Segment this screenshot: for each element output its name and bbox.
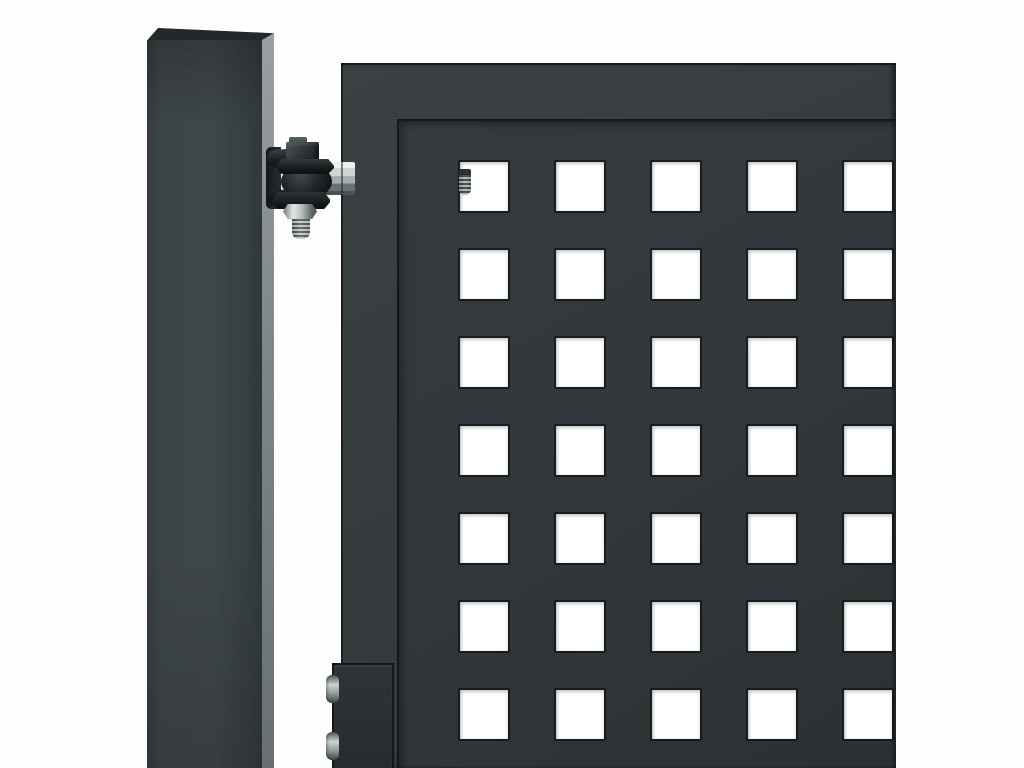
hinge-washer-top: [276, 159, 334, 174]
panel-hole: [556, 514, 604, 563]
panel-hole: [748, 250, 796, 299]
lower-hinge-bolt: [326, 675, 339, 703]
panel-hole: [556, 690, 604, 739]
panel-hole: [748, 426, 796, 475]
lower-hinge-plate: [332, 663, 394, 768]
panel-hole: [460, 426, 508, 475]
panel-hole: [844, 338, 892, 387]
panel-hole: [556, 250, 604, 299]
panel-hole: [460, 690, 508, 739]
hinge-threaded-stud: [292, 217, 310, 239]
perforation-holes-layer: [0, 0, 1024, 768]
panel-hole: [460, 602, 508, 651]
panel-hole: [748, 690, 796, 739]
panel-hole: [652, 602, 700, 651]
panel-hole: [844, 426, 892, 475]
panel-hole: [652, 426, 700, 475]
panel-hole: [844, 250, 892, 299]
panel-hole: [652, 514, 700, 563]
panel-hole: [652, 338, 700, 387]
lower-hinge-bolt: [326, 732, 339, 760]
hinge-hex-nut: [283, 204, 317, 219]
panel-hole: [652, 250, 700, 299]
gate-product-render: [0, 0, 1024, 768]
panel-hole: [460, 250, 508, 299]
panel-hole: [556, 162, 604, 211]
panel-hole: [844, 514, 892, 563]
panel-hole: [748, 162, 796, 211]
panel-hole: [556, 602, 604, 651]
panel-hole: [556, 426, 604, 475]
panel-hole: [556, 338, 604, 387]
panel-hole: [748, 602, 796, 651]
panel-hole: [844, 602, 892, 651]
ball-hinge-assembly: [260, 130, 360, 245]
panel-hole: [652, 690, 700, 739]
panel-hole: [652, 162, 700, 211]
panel-hole: [844, 690, 892, 739]
panel-hole: [460, 338, 508, 387]
panel-hole: [748, 514, 796, 563]
panel-hole: [748, 338, 796, 387]
panel-hole: [460, 514, 508, 563]
panel-hole: [844, 162, 892, 211]
hinge-axle-tip: [459, 169, 471, 195]
lower-hinge-bracket: [324, 663, 396, 768]
